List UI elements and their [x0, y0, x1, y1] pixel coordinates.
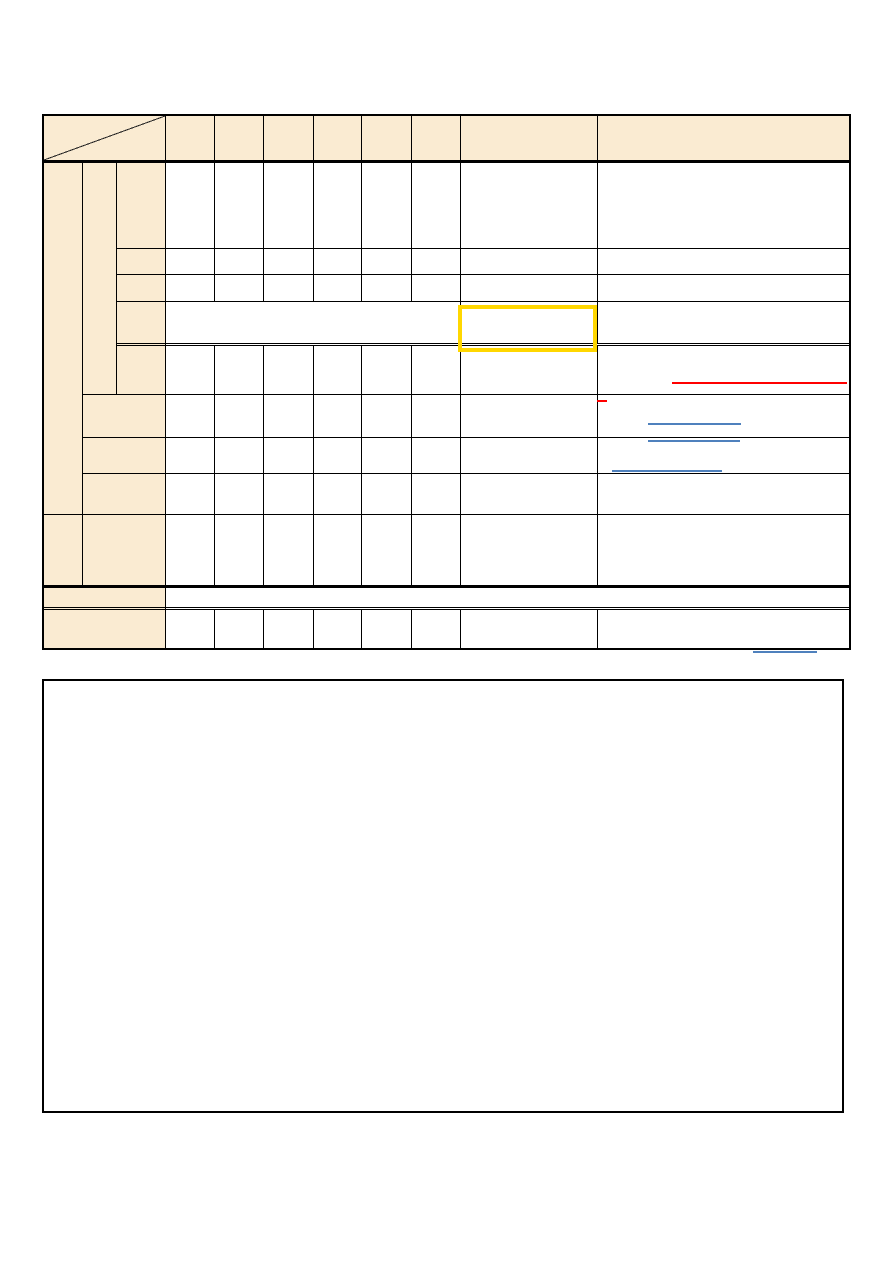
data-cell	[361, 248, 411, 274]
data-cell	[214, 274, 263, 301]
data-cell	[411, 514, 460, 586]
data-cell	[313, 274, 361, 301]
header-cell-wide-1	[460, 115, 597, 161]
data-cell-wide-1	[460, 437, 597, 473]
data-cell	[411, 473, 460, 514]
data-cell-wide-2	[597, 161, 850, 248]
data-cell	[214, 437, 263, 473]
data-cell-wide-1	[460, 161, 597, 248]
row-label-cell-8	[82, 473, 165, 514]
page	[0, 0, 893, 1262]
data-cell	[313, 394, 361, 437]
data-cell	[263, 473, 313, 514]
row-group-a2-cell	[43, 514, 82, 586]
data-cell-wide-2-blue-marked	[597, 609, 850, 649]
data-cell-wide-1	[460, 514, 597, 586]
data-cell	[411, 394, 460, 437]
row-label-cell-3	[116, 274, 165, 301]
data-cell	[263, 514, 313, 586]
row-label-cell-2	[116, 248, 165, 274]
data-cell	[165, 161, 214, 248]
data-cell	[411, 161, 460, 248]
data-cell	[313, 514, 361, 586]
row-label-cell-11	[43, 609, 165, 649]
data-cell-wide-2-red-marked	[597, 345, 850, 394]
data-cell-wide-1	[460, 274, 597, 301]
data-cell	[165, 274, 214, 301]
data-cell	[411, 345, 460, 394]
data-cell-wide-1	[460, 473, 597, 514]
row-group-b-cell	[82, 161, 116, 394]
data-cell	[263, 345, 313, 394]
data-cell-wide-1	[460, 345, 597, 394]
row-label-cell-4	[116, 301, 165, 343]
row-group-a-cell	[43, 161, 82, 514]
data-cell	[263, 394, 313, 437]
data-cell	[214, 161, 263, 248]
data-cell	[313, 161, 361, 248]
data-cell-wide-1	[460, 609, 597, 649]
data-cell-wide-2	[597, 473, 850, 514]
data-cell-wide-1-highlighted	[460, 301, 597, 343]
data-cell	[361, 514, 411, 586]
header-cell-3	[263, 115, 313, 161]
data-cell	[214, 345, 263, 394]
data-cell	[361, 473, 411, 514]
data-cell	[411, 248, 460, 274]
data-cell	[361, 609, 411, 649]
data-cell-wide-2	[597, 301, 850, 343]
form-table-region	[42, 114, 851, 650]
data-cell	[411, 437, 460, 473]
blue-underline	[753, 651, 817, 653]
data-cell	[165, 473, 214, 514]
data-cell	[361, 161, 411, 248]
merged-data-cell-full	[165, 586, 850, 607]
merged-data-cell	[165, 301, 460, 343]
data-cell	[165, 437, 214, 473]
form-table	[42, 114, 851, 650]
data-cell	[313, 437, 361, 473]
corner-diagonal-cell	[43, 115, 165, 161]
data-cell	[313, 345, 361, 394]
data-cell	[165, 248, 214, 274]
data-cell	[313, 473, 361, 514]
data-cell	[313, 248, 361, 274]
data-cell	[214, 514, 263, 586]
data-cell	[165, 609, 214, 649]
data-cell	[361, 437, 411, 473]
data-cell	[165, 394, 214, 437]
data-cell	[165, 345, 214, 394]
header-cell-6	[411, 115, 460, 161]
header-cell-1	[165, 115, 214, 161]
data-cell	[361, 394, 411, 437]
data-cell	[214, 609, 263, 649]
data-cell	[263, 437, 313, 473]
data-cell	[165, 514, 214, 586]
data-cell-wide-2	[597, 514, 850, 586]
data-cell-wide-2	[597, 248, 850, 274]
row-label-cell-10	[43, 586, 165, 607]
data-cell	[263, 609, 313, 649]
notes-box	[42, 679, 844, 1113]
data-cell	[214, 248, 263, 274]
data-cell	[263, 161, 313, 248]
data-cell	[214, 473, 263, 514]
header-cell-2	[214, 115, 263, 161]
row-label-cell-5	[116, 345, 165, 394]
header-cell-4	[313, 115, 361, 161]
row-label-cell-1	[116, 161, 165, 248]
data-cell	[313, 609, 361, 649]
data-cell-wide-1	[460, 394, 597, 437]
header-cell-5	[361, 115, 411, 161]
data-cell	[361, 345, 411, 394]
data-cell-wide-2	[597, 274, 850, 301]
row-label-cell-6	[82, 394, 165, 437]
data-cell	[263, 274, 313, 301]
header-cell-wide-2	[597, 115, 850, 161]
data-cell	[411, 274, 460, 301]
row-label-cell-7	[82, 437, 165, 473]
data-cell	[263, 248, 313, 274]
data-cell	[361, 274, 411, 301]
data-cell	[214, 394, 263, 437]
row-label-cell-9	[82, 514, 165, 586]
data-cell-wide-2-blue-marked	[597, 437, 850, 473]
data-cell	[411, 609, 460, 649]
data-cell-wide-1	[460, 248, 597, 274]
data-cell-wide-2-blue-marked	[597, 394, 850, 437]
